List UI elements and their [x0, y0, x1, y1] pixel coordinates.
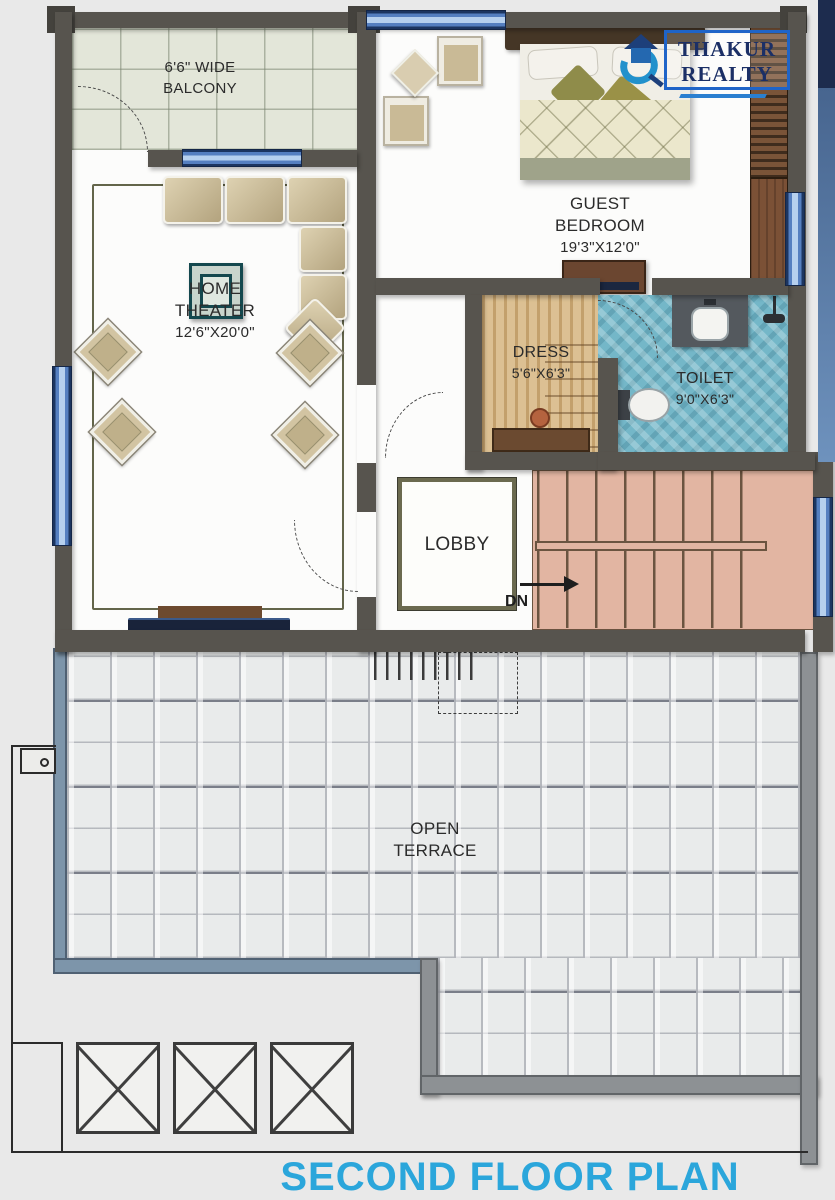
home-theater-label: HOME THEATER 12'6"X20'0" — [135, 278, 295, 344]
logo-roof — [624, 34, 658, 49]
tap — [704, 299, 716, 305]
wall-dress-left — [465, 295, 482, 470]
terrace-parapet-bottom — [53, 958, 425, 974]
home-theater-name-2: THEATER — [135, 300, 295, 322]
wall-bottom-main — [55, 630, 805, 652]
outline-step-h — [11, 1042, 62, 1044]
wall-left — [55, 12, 72, 652]
window-left — [52, 366, 72, 546]
wall-dress-bottom — [465, 452, 615, 470]
terrace-label: OPEN TERRACE — [335, 818, 535, 862]
sofa-cushion — [287, 176, 347, 224]
window-top — [366, 10, 506, 30]
balcony-name-2: BALCONY — [120, 78, 280, 99]
bedroom-chair — [437, 36, 483, 86]
gate-notch — [11, 745, 56, 747]
guest-bedroom-dims: 19'3"X12'0" — [520, 237, 680, 259]
logo-name-top: THAKUR — [667, 37, 787, 62]
floor-plan: 6'6" WIDE BALCONY HOME THEATER 12'6"X20'… — [0, 0, 835, 1200]
wall-stairs-top — [598, 452, 815, 470]
bedroom-chair — [383, 96, 429, 146]
dress-label: DRESS 5'6"X6'3" — [485, 342, 597, 384]
guest-bedroom-name-2: BEDROOM — [520, 215, 680, 237]
guest-bedroom-name-1: GUEST — [520, 193, 680, 215]
home-theater-dims: 12'6"X20'0" — [135, 322, 295, 344]
terrace-name-2: TERRACE — [335, 840, 535, 862]
bedroom-chair-seat — [390, 105, 424, 141]
wall-center-door-gap — [357, 512, 376, 597]
guest-bedroom-label: GUEST BEDROOM 19'3"X12'0" — [520, 193, 680, 259]
skylight-box — [76, 1042, 160, 1134]
lobby: LOBBY — [398, 478, 516, 610]
stair-dn-label: DN — [505, 593, 539, 611]
stair-direction-arrow — [520, 583, 566, 586]
lobby-label: LOBBY — [425, 534, 490, 555]
logo-underline — [679, 94, 767, 98]
wall-bedroom-bottom-b — [652, 278, 788, 295]
wall-dress-toilet-divider — [598, 358, 618, 452]
sofa-cushion — [299, 226, 347, 272]
window-bedroom-right — [785, 192, 805, 286]
toilet-label: TOILET 9'0"X6'3" — [640, 368, 770, 410]
bed-blanket — [520, 100, 690, 158]
stair-void-outline — [438, 652, 518, 714]
skylight-box — [173, 1042, 257, 1134]
wall-center-door-gap — [357, 385, 376, 463]
logo-name-bottom: REALTY — [667, 62, 787, 87]
gate-box — [20, 748, 56, 774]
outline-bottom — [11, 1151, 808, 1153]
logo: THAKUR REALTY — [618, 28, 790, 108]
gate-hinge — [40, 758, 49, 767]
toilet-dims: 9'0"X6'3" — [640, 389, 770, 410]
terrace-name-1: OPEN — [335, 818, 535, 840]
wardrobe — [750, 178, 788, 294]
logo-house-icon — [618, 34, 664, 88]
washbasin — [691, 307, 729, 341]
skylight-box — [270, 1042, 354, 1134]
plan-title: SECOND FLOOR PLAN — [160, 1155, 835, 1200]
edge-strip-blue — [818, 88, 835, 462]
sofa-cushion — [163, 176, 223, 224]
logo-magnifier-handle — [648, 74, 664, 88]
outline-left — [11, 745, 13, 1153]
terrace-wall-right — [800, 652, 818, 1165]
sofa-cushion — [225, 176, 285, 224]
balcony-label: 6'6" WIDE BALCONY — [120, 57, 280, 99]
balcony-name-1: 6'6" WIDE — [120, 57, 280, 78]
terrace-parapet-left — [53, 648, 67, 974]
home-theater-name-1: HOME — [135, 278, 295, 300]
terrace-floor — [67, 652, 800, 958]
outline-step-v — [61, 1042, 63, 1152]
toilet-name: TOILET — [640, 368, 770, 389]
window-stairs-right — [813, 497, 833, 617]
washbasin-counter — [672, 295, 748, 347]
window-balcony — [182, 149, 302, 167]
logo-box: THAKUR REALTY — [664, 30, 790, 90]
terrace-floor-extension — [438, 958, 800, 1077]
dress-name: DRESS — [485, 342, 597, 363]
dressing-table — [492, 428, 590, 452]
dress-dims: 5'6"X6'3" — [485, 363, 597, 384]
edge-strip-navy — [818, 0, 835, 88]
terrace-wall-bottom — [420, 1075, 818, 1095]
bedroom-chair-seat — [444, 45, 478, 81]
dressing-pot — [530, 408, 550, 428]
logo-house-body — [631, 48, 651, 63]
shower-head — [763, 314, 785, 323]
wall-bedroom-bottom-a — [376, 278, 600, 295]
stair-arrowhead — [564, 576, 579, 592]
staircase — [532, 470, 815, 630]
bed-footband — [520, 158, 690, 180]
sofa-top — [163, 176, 347, 226]
stair-handrail — [535, 541, 767, 551]
